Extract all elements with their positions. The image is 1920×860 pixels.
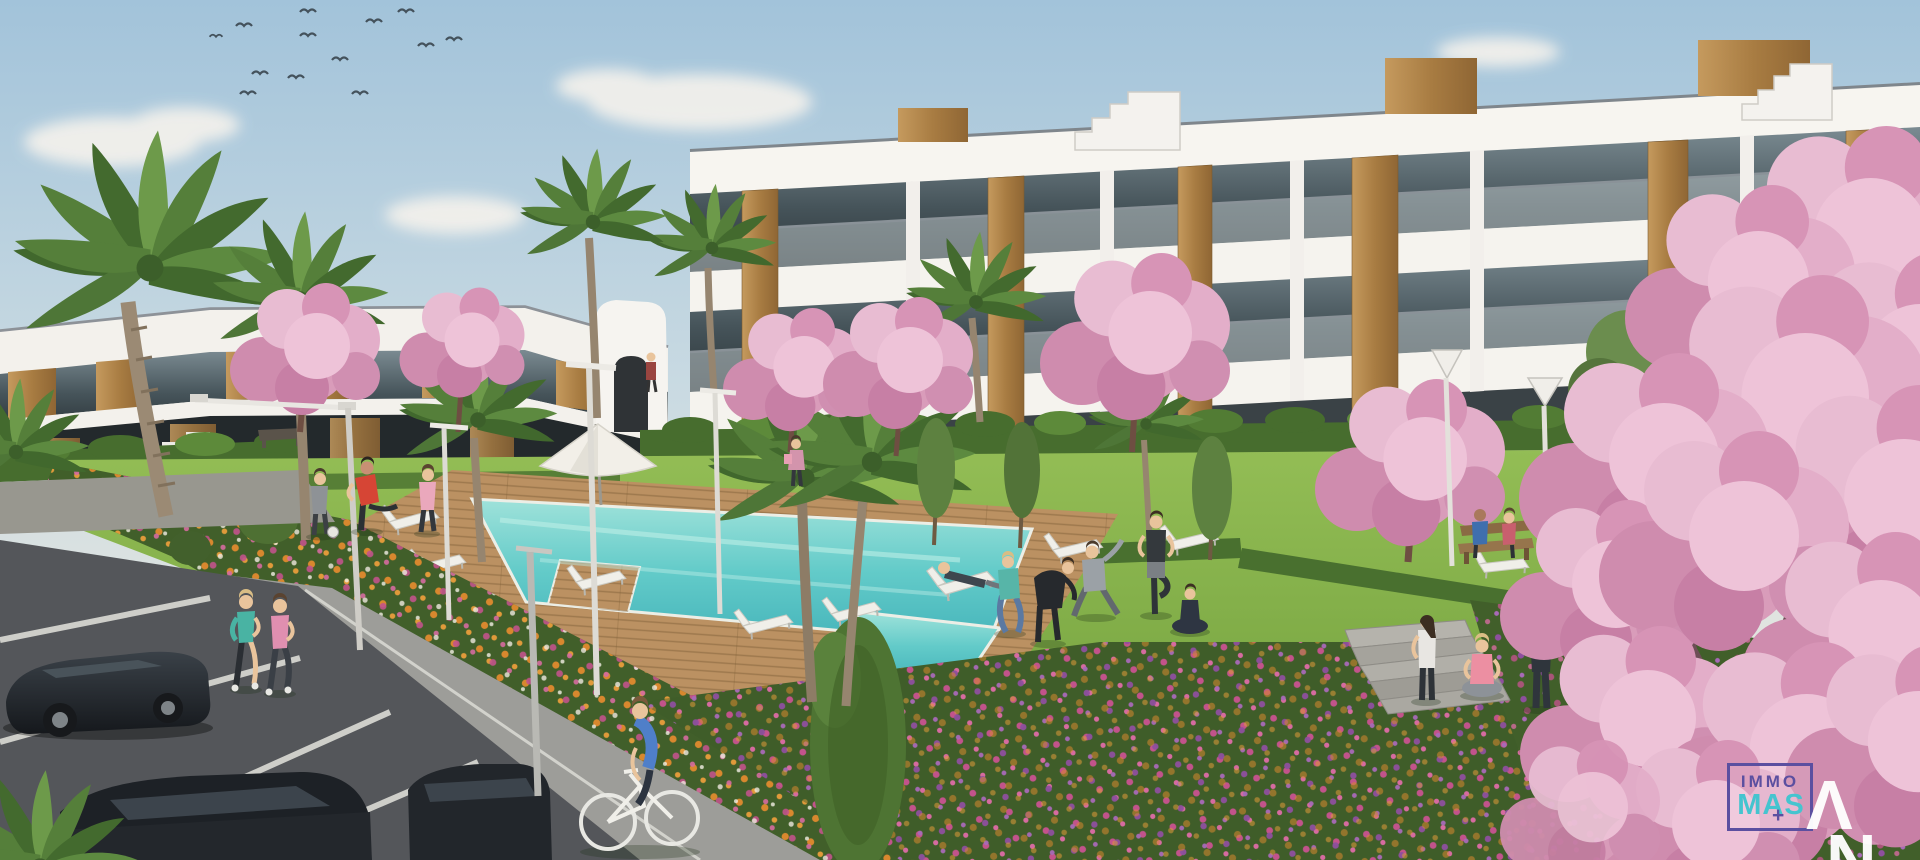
watermark-plus-icon: + (1772, 805, 1784, 826)
scene-canvas (0, 0, 1920, 860)
watermark-box: IMMO MAS + (1727, 763, 1813, 831)
watermark-letter-n: N (1826, 824, 1877, 860)
parked-car-third (408, 764, 552, 860)
watermark-mas-text: MAS (1725, 791, 1817, 820)
architectural-render: IMMO MAS + Λ N (0, 0, 1920, 860)
watermark-immo-text: IMMO (1730, 773, 1810, 790)
